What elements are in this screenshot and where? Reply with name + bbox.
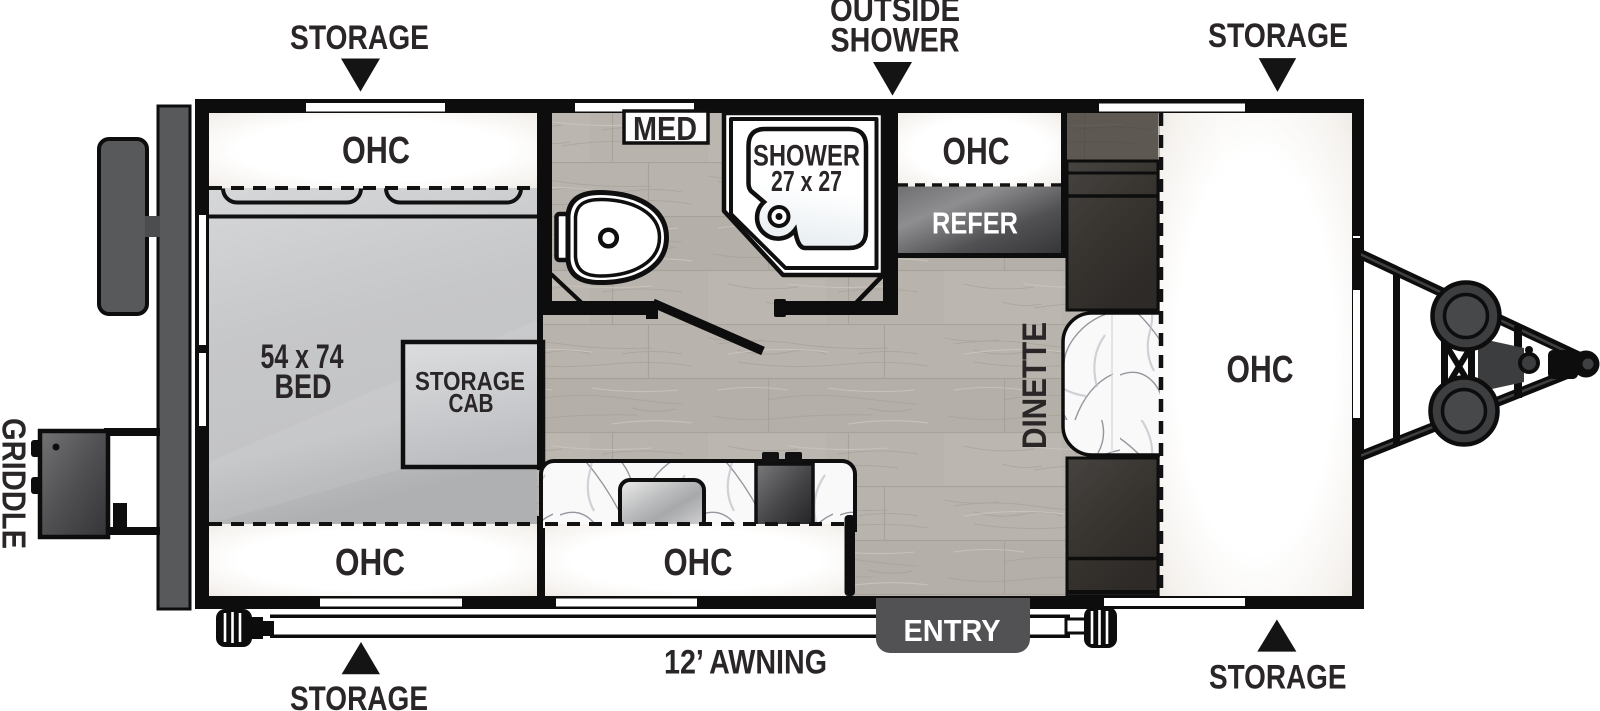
svg-text:BED: BED [275,368,332,406]
svg-text:12’ AWNING: 12’ AWNING [664,644,827,682]
svg-text:OHC: OHC [335,542,405,584]
svg-text:MED: MED [633,110,697,147]
svg-text:STORAGE: STORAGE [290,19,429,57]
svg-text:OHC: OHC [664,542,733,584]
svg-text:GRIDDLE: GRIDDLE [0,418,32,549]
svg-text:REFER: REFER [932,206,1018,241]
svg-text:27 x 27: 27 x 27 [771,166,842,198]
svg-text:SHOWER: SHOWER [831,22,960,60]
svg-text:OHC: OHC [342,130,410,172]
svg-text:OHC: OHC [943,131,1010,173]
svg-text:DINETTE: DINETTE [1016,322,1054,449]
svg-text:STORAGE: STORAGE [1208,17,1348,55]
svg-text:STORAGE: STORAGE [1209,658,1347,696]
svg-text:STORAGE: STORAGE [290,680,428,711]
svg-text:OHC: OHC [1227,349,1294,391]
svg-text:CAB: CAB [449,388,494,418]
svg-text:ENTRY: ENTRY [904,613,1001,648]
